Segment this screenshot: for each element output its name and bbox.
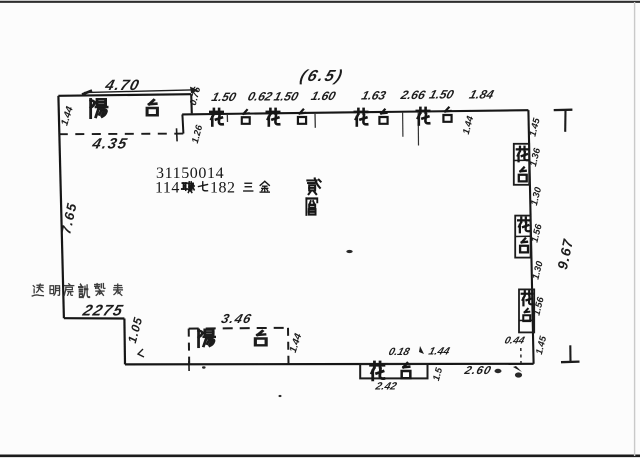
svg-text:2.42: 2.42 [373,381,398,393]
svg-text:0.44: 0.44 [503,336,526,347]
svg-text:4.70: 4.70 [103,77,142,94]
svg-text:3.46: 3.46 [220,311,254,326]
svg-text:114: 114 [155,180,180,197]
svg-text:4.35: 4.35 [90,136,130,153]
svg-text:0.62: 0.62 [246,90,274,104]
svg-text:1.44: 1.44 [427,346,451,358]
svg-text:1.50: 1.50 [272,90,300,104]
svg-text:0.18: 0.18 [387,346,411,358]
svg-text:1.50: 1.50 [210,90,238,104]
svg-text:1.84: 1.84 [468,88,496,102]
svg-text:2.66: 2.66 [398,88,427,102]
svg-text:2.60: 2.60 [462,364,493,377]
svg-text:182: 182 [210,180,236,197]
svg-text:2275: 2275 [80,303,126,320]
svg-text:1.60: 1.60 [310,89,338,103]
svg-text:1.63: 1.63 [360,89,388,103]
svg-text:(6.5): (6.5) [298,67,347,85]
svg-text:1.50: 1.50 [428,88,456,102]
